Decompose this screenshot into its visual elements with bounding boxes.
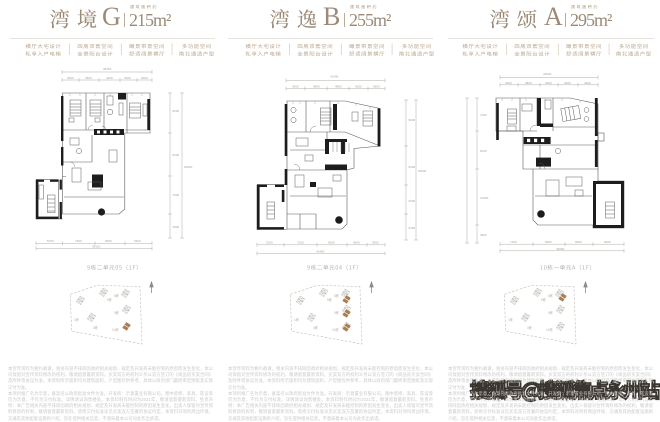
svg-text:43000: 43000 [556, 247, 565, 251]
svg-text:4200: 4200 [584, 81, 591, 85]
svg-text:7200: 7200 [480, 113, 487, 117]
svg-text:6300: 6300 [409, 199, 416, 203]
svg-text:41400: 41400 [316, 250, 325, 254]
svg-text:9600: 9600 [409, 118, 416, 122]
svg-text:7600: 7600 [173, 193, 180, 197]
svg-text:7200: 7200 [297, 240, 304, 244]
svg-text:4800: 4800 [335, 85, 342, 89]
svg-text:3900: 3900 [480, 233, 487, 237]
svg-text:5400: 5400 [409, 226, 416, 230]
svg-text:4500: 4500 [353, 240, 360, 244]
svg-text:3600: 3600 [373, 85, 380, 89]
svg-text:4200: 4200 [355, 85, 362, 89]
svg-text:8400: 8400 [409, 165, 416, 169]
svg-text:43000: 43000 [543, 72, 552, 76]
svg-text:6000: 6000 [575, 240, 582, 244]
svg-text:38150: 38150 [92, 245, 101, 249]
svg-text:6600: 6600 [105, 239, 112, 243]
svg-text:4200: 4200 [292, 85, 299, 89]
svg-text:8100: 8100 [480, 149, 487, 153]
svg-text:3300: 3300 [124, 76, 131, 80]
svg-text:4500: 4500 [85, 76, 92, 80]
svg-text:6600: 6600 [328, 240, 335, 244]
svg-text:5700: 5700 [47, 239, 54, 243]
svg-text:38150: 38150 [103, 67, 112, 71]
svg-text:3900: 3900 [372, 240, 379, 244]
svg-text:9000: 9000 [173, 153, 180, 157]
svg-text:8200: 8200 [173, 109, 180, 113]
svg-text:3900: 3900 [545, 81, 552, 85]
svg-text:29500: 29500 [184, 165, 193, 169]
svg-text:6900: 6900 [545, 240, 552, 244]
svg-text:12000: 12000 [480, 196, 489, 200]
svg-text:4800: 4800 [173, 225, 180, 229]
svg-text:4200: 4200 [564, 81, 571, 85]
svg-text:4200: 4200 [106, 76, 113, 80]
svg-text:30600: 30600 [418, 169, 427, 173]
svg-text:5400: 5400 [134, 239, 141, 243]
svg-text:6600: 6600 [604, 240, 611, 244]
svg-text:3000: 3000 [141, 76, 148, 80]
svg-text:4800: 4800 [313, 85, 320, 89]
svg-text:3900: 3900 [505, 81, 512, 85]
svg-text:5100: 5100 [266, 240, 273, 244]
svg-text:4800: 4800 [525, 81, 532, 85]
svg-text:7200: 7200 [75, 239, 82, 243]
svg-text:41400: 41400 [330, 75, 339, 79]
svg-text:7100: 7100 [510, 240, 517, 244]
svg-text:3600: 3600 [67, 76, 74, 80]
